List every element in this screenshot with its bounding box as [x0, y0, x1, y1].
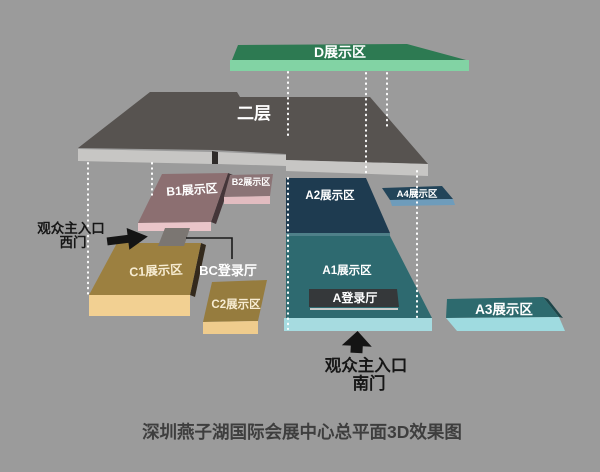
b2-label: B2展示区	[232, 177, 271, 187]
west-entrance-label: 观众主入口	[37, 220, 105, 236]
west-entrance-gate-label: 西门	[60, 234, 87, 250]
a3-exhibition-block: A3展示区	[446, 297, 565, 331]
b2-exhibition-block: B2展示区	[224, 174, 273, 204]
a3-label: A3展示区	[475, 302, 533, 317]
a1-label: A1展示区	[322, 264, 372, 277]
c2-label: C2展示区	[211, 298, 261, 311]
a2-a1-edge	[286, 233, 390, 236]
a3-front-face	[446, 317, 565, 331]
a1-front-face	[284, 318, 432, 331]
c2-exhibition-block: C2展示区	[203, 280, 267, 334]
diagram-caption: 深圳燕子湖国际会展中心总平面3D效果图	[142, 422, 462, 442]
bc-hall-label: BC登录厅	[199, 263, 257, 278]
a2-label: A2展示区	[305, 189, 355, 202]
south-entrance-label: 观众主入口	[325, 355, 408, 375]
a-hall-label: A登录厅	[333, 290, 378, 305]
a-hall-block: A登录厅	[309, 289, 399, 309]
a4-front-face	[390, 199, 455, 206]
a4-exhibition-block: A4展示区	[382, 186, 455, 206]
c1-label: C1展示区	[129, 263, 184, 280]
floorplan-3d-diagram: D展示区 二层 B1展示区 B2展示区 A2展示区 A1展示区	[0, 0, 600, 472]
south-entrance-gate-label: 南门	[353, 373, 386, 393]
c2-front-face	[203, 321, 258, 334]
b2-front-face	[224, 196, 270, 204]
second-floor-notch	[212, 151, 218, 164]
c1-front-face	[89, 295, 190, 316]
d-front-face	[230, 60, 469, 71]
second-floor-label: 二层	[237, 104, 271, 123]
d-label: D展示区	[314, 44, 366, 60]
